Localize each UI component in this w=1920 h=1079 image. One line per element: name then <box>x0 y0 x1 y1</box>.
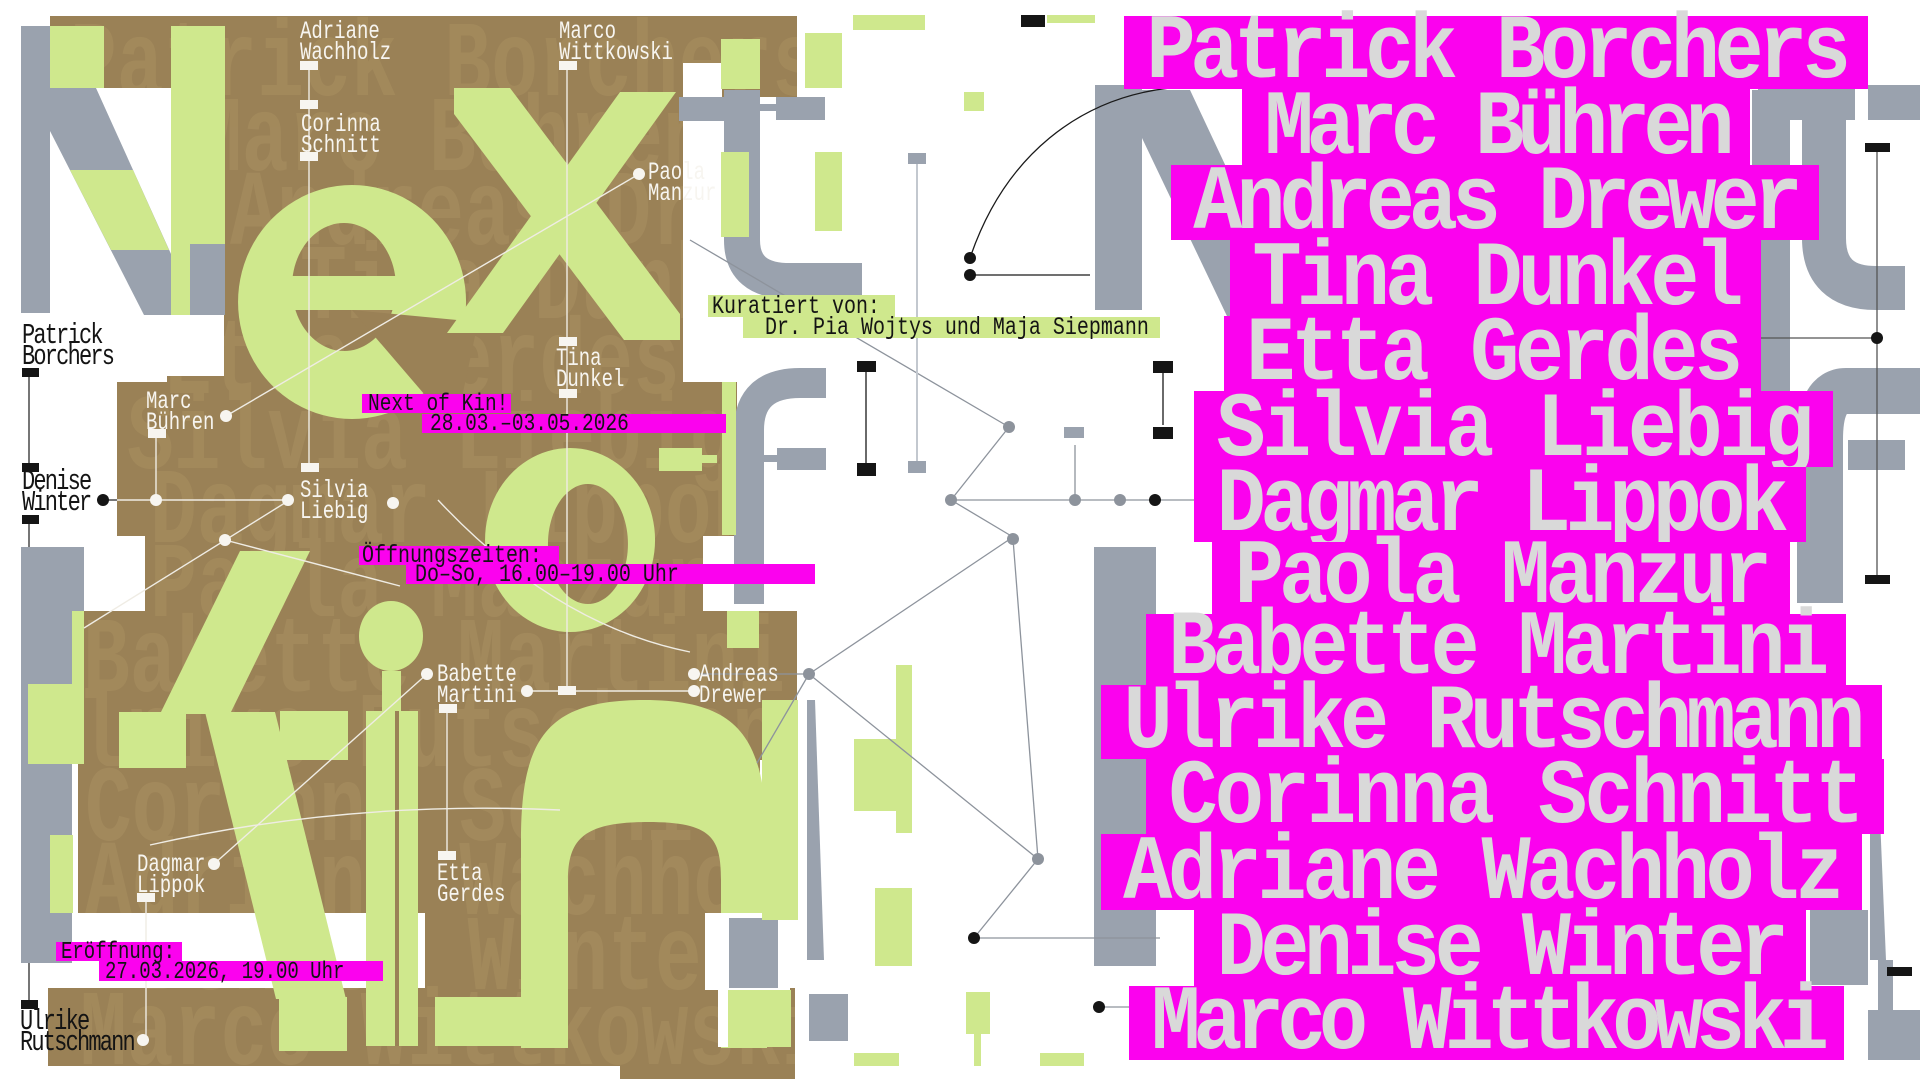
svg-text:Rutschmann: Rutschmann <box>20 1026 135 1059</box>
svg-text:Martini: Martini <box>437 682 517 710</box>
svg-text:Marco Wittkowski: Marco Wittkowski <box>1151 973 1826 1076</box>
svg-text:27.03.2026, 19.00 Uhr: 27.03.2026, 19.00 Uhr <box>105 959 344 986</box>
svg-text:Wachholz: Wachholz <box>300 39 391 67</box>
svg-text:Dr. Pia Wojtys und Maja Siepma: Dr. Pia Wojtys und Maja Siepmann <box>765 313 1149 342</box>
svg-text:28.03.–03.05.2026: 28.03.–03.05.2026 <box>430 410 629 438</box>
svg-text:Gerdes: Gerdes <box>437 881 505 909</box>
svg-text:Manzur: Manzur <box>648 180 716 208</box>
svg-text:Do–So, 16.00–19.00 Uhr: Do–So, 16.00–19.00 Uhr <box>415 560 679 589</box>
svg-text:Schnitt: Schnitt <box>301 132 381 160</box>
svg-text:Wittkowski: Wittkowski <box>559 39 673 67</box>
svg-text:Drewer: Drewer <box>699 682 767 710</box>
svg-text:Bühren: Bühren <box>146 409 214 437</box>
svg-text:Dunkel: Dunkel <box>556 366 624 394</box>
svg-text:Winter: Winter <box>22 486 91 519</box>
svg-text:Liebig: Liebig <box>300 498 368 526</box>
svg-text:Borchers: Borchers <box>22 340 114 373</box>
svg-text:Lippok: Lippok <box>137 872 205 900</box>
